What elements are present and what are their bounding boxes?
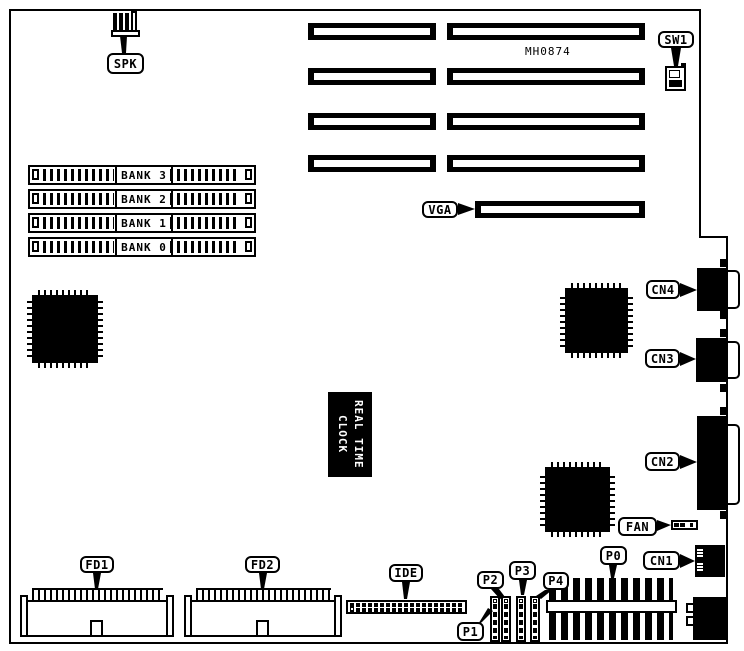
cn1-pins <box>697 548 703 557</box>
slot-opening <box>314 28 430 35</box>
bank1-label: BANK 1 <box>115 213 173 233</box>
chip-pins <box>27 301 32 357</box>
chip-pins <box>98 301 103 357</box>
chip-pins <box>610 473 615 526</box>
motherboard-diagram: MH0874 BANK 3 BANK 2 BANK <box>0 0 744 651</box>
fd2-tail-icon <box>259 573 267 589</box>
socket-contacts <box>170 241 239 253</box>
socket-contacts <box>43 169 114 181</box>
header-pin1 <box>493 599 497 603</box>
cn4-label: CN4 <box>646 280 680 299</box>
socket-clip-left <box>32 169 39 180</box>
din-pin <box>686 616 695 626</box>
vga-label: VGA <box>422 201 458 218</box>
slot-opening <box>453 160 639 167</box>
socket-clip-right <box>245 193 252 204</box>
cn1-label: CN1 <box>643 551 680 570</box>
din-pin <box>686 603 695 613</box>
header-p2 <box>501 596 511 642</box>
slot-opening <box>453 28 639 35</box>
spk-tail-icon <box>120 36 127 53</box>
isa-slot-left-2 <box>308 68 436 85</box>
switch-body <box>669 80 682 87</box>
fd2-label: FD2 <box>245 556 280 573</box>
slot-opening <box>314 118 430 125</box>
p2-label: P2 <box>477 571 504 589</box>
cn2-connector <box>697 416 727 510</box>
chip-pins <box>551 462 604 467</box>
cn2-mount-tab <box>720 407 728 415</box>
sw1-label: SW1 <box>658 31 694 48</box>
switch-slider <box>669 70 680 78</box>
sw1-switch <box>665 66 686 91</box>
speaker-base <box>111 30 140 37</box>
p0-connector-body <box>546 600 677 613</box>
socket-clip-right <box>245 169 252 180</box>
isa-slot-right-2 <box>447 68 645 85</box>
isa-slot-right-3 <box>447 113 645 130</box>
speaker-connector <box>111 11 141 38</box>
socket-contacts <box>170 217 239 229</box>
switch-dot <box>681 63 686 68</box>
rtc-line2: CLOCK <box>334 400 350 469</box>
isa-slot-left-4 <box>308 155 436 172</box>
chip-pins <box>571 283 622 288</box>
ide-pin-row <box>350 608 463 612</box>
header-pins <box>504 604 508 639</box>
cn3-mount-tab <box>720 329 728 337</box>
fan-connector <box>671 520 698 530</box>
header-pin1 <box>504 599 508 603</box>
p0-tail-icon <box>609 565 617 578</box>
simm-socket-bank3: BANK 3 <box>28 165 256 185</box>
header-pins <box>533 604 537 639</box>
sw1-tail-icon <box>671 48 681 66</box>
cn2-shell <box>727 424 740 505</box>
chip-pins <box>551 532 604 537</box>
chip-pins <box>571 353 622 358</box>
p3-label: P3 <box>509 561 536 580</box>
chip-pins <box>38 363 92 368</box>
din-connector <box>693 597 727 640</box>
speaker-pin-outline <box>131 11 137 32</box>
socket-clip-right <box>245 241 252 252</box>
socket-clip-left <box>32 217 39 228</box>
cn4-shell <box>727 270 740 309</box>
ide-label: IDE <box>389 564 423 582</box>
cn3-label: CN3 <box>645 349 680 368</box>
ide-connector <box>346 600 467 614</box>
slot-opening <box>453 118 639 125</box>
slot-opening <box>314 160 430 167</box>
socket-clip-left <box>32 193 39 204</box>
cn2-mount-tab <box>720 511 728 519</box>
isa-slot-right-4 <box>447 155 645 172</box>
vga-arrow-icon <box>458 203 475 215</box>
fd1-key-notch <box>90 620 103 637</box>
header-p4 <box>530 596 540 642</box>
socket-clip-right <box>245 217 252 228</box>
fan-pin <box>690 523 693 527</box>
cn3-shell <box>727 341 740 379</box>
socket-contacts <box>43 193 114 205</box>
slot-opening <box>314 73 430 80</box>
bank3-label: BANK 3 <box>115 165 173 185</box>
socket-contacts <box>170 169 239 181</box>
cn3-mount-tab <box>720 384 728 392</box>
chip-pins <box>38 290 92 295</box>
chip-left <box>32 295 98 363</box>
isa-slot-left-1 <box>308 23 436 40</box>
cn3-arrow-icon <box>680 352 696 366</box>
isa-slot-left-3 <box>308 113 436 130</box>
header-pins <box>519 604 523 639</box>
slot-opening <box>481 206 639 213</box>
bank2-label: BANK 2 <box>115 189 173 209</box>
simm-socket-bank0: BANK 0 <box>28 237 256 257</box>
fan-arrow-icon <box>657 520 671 531</box>
cn1-connector <box>695 545 725 577</box>
fan-pin <box>674 523 679 527</box>
bank0-label: BANK 0 <box>115 237 173 257</box>
chip-upper-right <box>565 288 628 353</box>
ide-tail-icon <box>402 582 410 599</box>
p4-label: P4 <box>543 572 569 590</box>
simm-socket-bank2: BANK 2 <box>28 189 256 209</box>
fd1-tail-icon <box>93 573 101 589</box>
p1-label: P1 <box>457 622 484 641</box>
socket-contacts <box>43 241 114 253</box>
p0-label: P0 <box>600 546 627 565</box>
header-pins <box>493 604 497 639</box>
ide-pin1 <box>350 607 354 611</box>
socket-contacts <box>170 193 239 205</box>
cn1-pins <box>697 562 703 571</box>
p3-tail-icon <box>519 580 527 595</box>
fan-label: FAN <box>618 517 657 536</box>
cn1-arrow-icon <box>680 554 695 568</box>
rtc-text: REAL TIME CLOCK <box>334 400 366 469</box>
vga-slot <box>475 201 645 218</box>
chip-lower-right <box>545 467 610 532</box>
cn4-mount-tab <box>720 259 728 267</box>
header-p3 <box>516 596 526 642</box>
fan-pin <box>680 523 685 527</box>
cn4-arrow-icon <box>680 283 697 297</box>
header-pin1 <box>533 599 537 603</box>
simm-socket-bank1: BANK 1 <box>28 213 256 233</box>
rtc-line1: REAL TIME <box>350 400 366 469</box>
chip-pins <box>628 294 633 347</box>
header-pin1 <box>519 599 523 603</box>
socket-clip-left <box>32 241 39 252</box>
part-number: MH0874 <box>525 45 571 58</box>
cn4-mount-tab <box>720 311 728 319</box>
fd2-key-notch <box>256 620 269 637</box>
ide-pin-row <box>350 603 463 607</box>
cn2-label: CN2 <box>645 452 680 471</box>
cn2-arrow-icon <box>680 455 697 469</box>
chip-pins <box>540 473 545 526</box>
rtc-chip: REAL TIME CLOCK <box>328 392 372 477</box>
chip-pins <box>560 294 565 347</box>
header-p1 <box>490 596 500 642</box>
slot-opening <box>453 73 639 80</box>
fd1-label: FD1 <box>80 556 114 573</box>
spk-label: SPK <box>107 53 144 74</box>
cn3-connector <box>696 338 727 382</box>
isa-slot-right-1 <box>447 23 645 40</box>
socket-contacts <box>43 217 114 229</box>
cn4-connector <box>697 268 727 311</box>
